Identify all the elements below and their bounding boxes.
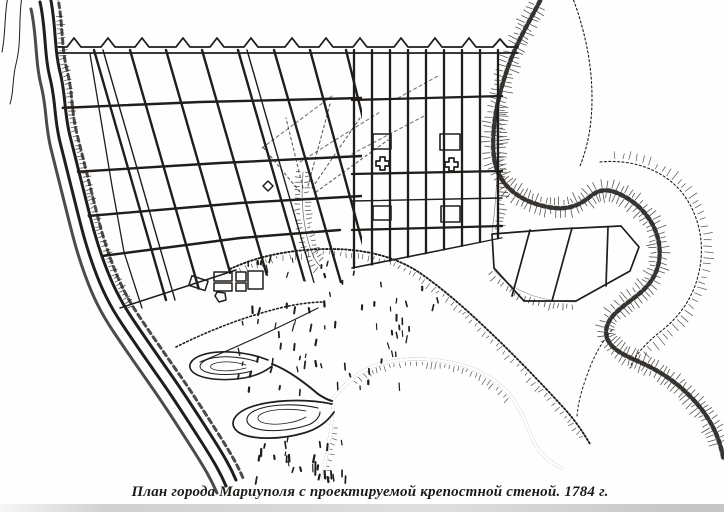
scan-smudge	[0, 504, 724, 512]
stream-lobe-west	[190, 352, 332, 401]
bank-contour	[2, 0, 8, 52]
projected-dashed-overlay	[262, 76, 438, 162]
sheared-street-grid	[60, 50, 408, 308]
pentagon-marker	[215, 292, 226, 302]
fan-south-hachure	[494, 270, 576, 302]
gully-line	[200, 308, 318, 362]
church-marker	[376, 157, 389, 170]
map-drawing	[0, 0, 724, 512]
church-marker	[445, 158, 458, 171]
lowland-streams	[190, 308, 562, 480]
rectangular-street-grid	[352, 50, 502, 268]
projected-dashed-rays	[262, 104, 388, 192]
bank-contour	[10, 0, 22, 104]
stream-lobe-south	[233, 401, 334, 439]
figure-caption: План города Мариуполя с проектируемой кр…	[70, 484, 670, 501]
river-with-hatched-banks-right	[481, 0, 724, 458]
fortress-wall-with-bastions	[58, 38, 518, 53]
diamond-marker	[263, 181, 273, 191]
diagonal-block-fan	[492, 226, 639, 301]
outer-bank-contour	[572, 0, 592, 166]
map-figure: План города Мариуполя с проектируемой кр…	[0, 0, 724, 512]
vegetation-dashes	[238, 257, 438, 484]
central-gully	[262, 76, 438, 273]
